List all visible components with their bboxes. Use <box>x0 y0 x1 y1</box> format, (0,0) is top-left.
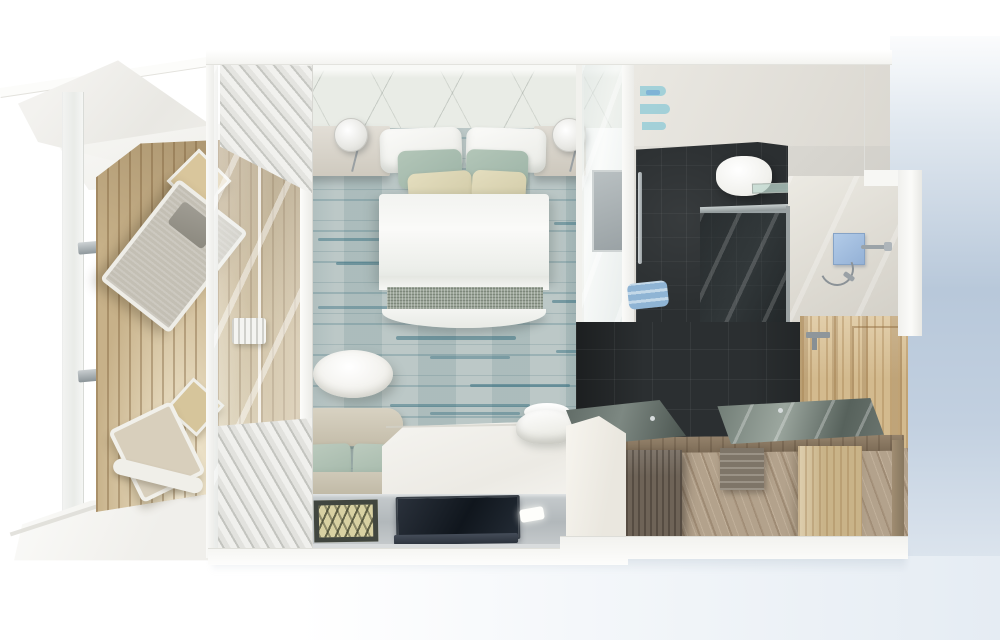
cabin-floorplan-render <box>0 0 1000 640</box>
bathroom-ceiling-plane <box>634 64 890 146</box>
headboard-wall <box>296 58 624 128</box>
carpet-streak <box>430 356 510 359</box>
wall-faucet <box>806 332 830 338</box>
shower-frame-vertical <box>786 206 790 334</box>
curtain-stack-bottom <box>218 418 312 552</box>
window-sill-unit <box>232 318 266 344</box>
balcony-balustrade-glass <box>62 92 84 528</box>
glass-shelf <box>640 104 670 114</box>
shower-head <box>884 242 892 251</box>
bench-mat-zigzag <box>314 499 379 542</box>
vanity-frame-leg <box>892 440 904 540</box>
vanity-front-panel <box>566 416 626 540</box>
carpet-streak <box>396 336 516 340</box>
vanity-post-light <box>798 446 862 536</box>
top-wall-rim <box>206 50 892 65</box>
carpet-streak <box>390 404 530 407</box>
bathroom-wall-right-upper <box>864 52 891 186</box>
wall-sconce-left <box>334 118 368 152</box>
sliding-door-mirror <box>592 170 626 252</box>
oval-side-table <box>313 350 393 398</box>
vanity-faucet-left <box>650 416 655 421</box>
shower-glass-front <box>700 210 790 337</box>
vanity-post-dark <box>620 450 682 538</box>
carpet-streak <box>552 300 578 303</box>
bathroom-bottom-wall <box>560 536 908 559</box>
glass-shelf <box>642 122 666 130</box>
bedroom-corner-post <box>196 428 218 560</box>
blue-towel-rolls <box>627 280 669 310</box>
carpet-streak <box>554 222 578 225</box>
carpet-streak <box>470 384 570 387</box>
vanity-faucet-right <box>778 408 783 413</box>
carpet-streak <box>430 412 520 415</box>
towel-bar <box>638 172 642 264</box>
blue-towel <box>646 90 660 95</box>
vanity-shelf <box>720 448 764 490</box>
carpet-streak <box>318 238 388 241</box>
bathroom-wall-right-lower <box>898 170 922 336</box>
bed-duvet <box>379 194 549 282</box>
wall-faucet-spout <box>812 338 817 350</box>
